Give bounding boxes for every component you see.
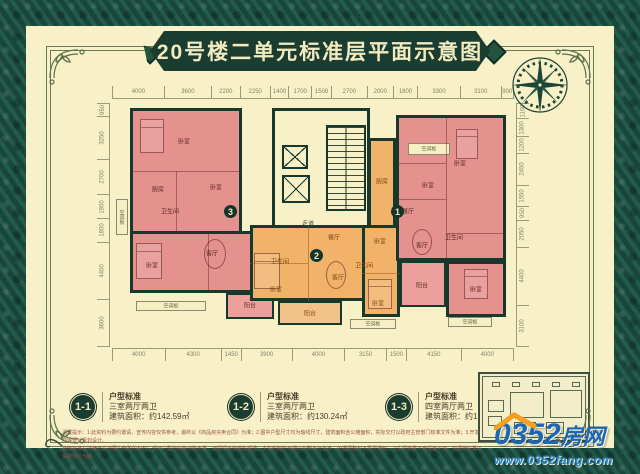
dimension-value: 2700: [331, 86, 366, 98]
dimension-value: 4000: [112, 349, 165, 361]
dimension-value: 950: [517, 206, 529, 219]
dimension-value: 4000: [292, 349, 345, 361]
legend-item-1-2: 1-2 户型标准 三室两厅两卫 建筑面积：约130.24㎡: [228, 388, 374, 426]
partition-wall: [308, 225, 309, 301]
dimension-value: 1700: [288, 86, 311, 98]
room-label: 卧室: [374, 237, 386, 246]
room-label: 空调板: [163, 303, 178, 310]
dimension-value: 4400: [517, 247, 529, 305]
unit-number-badge: 2: [310, 249, 323, 262]
disclaimer-line-1: 温馨提示：1.此资料为要约邀请，宣传内容仅供参考，最终以《商品房买卖合同》为准；…: [62, 429, 482, 445]
room-label: 阳台: [416, 281, 428, 290]
dimension-value: 2450: [517, 153, 529, 186]
legend-layout: 三室两厅两卫: [267, 402, 347, 412]
dimension-value: 3900: [241, 349, 292, 361]
dimension-value: 1200: [517, 136, 529, 153]
partition-wall: [396, 163, 446, 164]
dimension-strip-top: 4000360022002250140017001500270020001800…: [112, 86, 514, 99]
room-label: 客厅: [206, 249, 218, 258]
room-label: 空调板: [119, 210, 126, 225]
dimension-value: 3600: [164, 86, 211, 98]
dimension-value: 1400: [270, 86, 289, 98]
dimension-value: 2000: [367, 86, 393, 98]
legend-badge: 1-2: [228, 394, 254, 420]
room-label: 卧室: [372, 299, 384, 308]
dimension-value: 1800: [97, 218, 109, 242]
dimension-value: 3600: [97, 299, 109, 346]
dimension-value: 1500: [311, 86, 331, 98]
room-label: 阳台: [304, 309, 316, 318]
dimension-strip-bottom: 400043001450390040003150150041504000: [112, 348, 514, 361]
room-label: 客厅: [332, 273, 344, 282]
room-label: 阳台: [244, 301, 256, 310]
room-label: 卫生间: [355, 261, 373, 270]
dimension-value: 3300: [417, 86, 460, 98]
unit-number-badge: 3: [224, 205, 237, 218]
dimension-value: 2050: [517, 220, 529, 248]
room-label: 餐厅: [328, 233, 340, 242]
dimension-value: 2250: [240, 86, 270, 98]
room-label: 空调板: [421, 146, 436, 153]
dimension-value: 4000: [461, 349, 514, 361]
dimension-value: 4400: [97, 242, 109, 299]
stairs: [326, 125, 366, 211]
room-label: 卧室: [422, 181, 434, 190]
bed-symbol: [456, 129, 478, 159]
dimension-value: 4300: [165, 349, 221, 361]
dimension-value: 2700: [97, 159, 109, 194]
partition-wall: [130, 171, 242, 172]
dimension-value: 3100: [460, 86, 501, 98]
dimension-value: 4150: [406, 349, 460, 361]
brand-cn: 房网: [561, 424, 605, 449]
unit-legend: 1-1 户型标准 三室两厅两卫 建筑面积：约142.59㎡ 1-2 户型标准 三…: [70, 388, 540, 426]
disclaimer-text: 温馨提示：1.此资料为要约邀请，宣传内容仅供参考，最终以《商品房买卖合同》为准；…: [62, 429, 482, 461]
room-label: 卧室: [270, 285, 282, 294]
room-label: 卫生间: [271, 257, 289, 266]
legend-type: 户型标准: [267, 392, 347, 402]
legend-item-1-1: 1-1 户型标准 三室两厅两卫 建筑面积：约142.59㎡: [70, 388, 216, 426]
dimension-value: 1550: [517, 185, 529, 206]
bed-symbol: [140, 119, 164, 153]
disclaimer-line-2: 装修标准在法律允许范围内修改的权利；部分户型为镜像对称布置，详情请咨询销售现场；…: [62, 445, 482, 461]
legend-area: 建筑面积：约142.59㎡: [109, 412, 189, 422]
dimension-value: 4000: [112, 86, 164, 98]
dimension-strip-left: 950325027001800180044003600: [97, 103, 110, 347]
legend-layout: 三室两厅两卫: [109, 402, 189, 412]
legend-area: 建筑面积：约130.24㎡: [267, 412, 347, 422]
title-banner: 20号楼二单元标准层平面示意图: [150, 31, 490, 71]
room-label: 卧室: [210, 183, 222, 192]
partition-wall: [176, 171, 177, 231]
room-label: 空调板: [462, 319, 477, 326]
dimension-value: 1800: [97, 194, 109, 218]
page-title: 20号楼二单元标准层平面示意图: [157, 36, 483, 66]
floor-plan-poster: 20号楼二单元标准层平面示意图 400036002200225014001700…: [0, 0, 640, 474]
room-label: 卧室: [454, 159, 466, 168]
watermark-logo: 0352房网 www.0352fang.com: [494, 420, 636, 467]
room-label: 卫生间: [445, 233, 463, 242]
room-label: 卧室: [178, 137, 190, 146]
corner-flourish-icon: [48, 48, 88, 88]
dimension-strip-right: 11001300120024501550950205044003100: [516, 103, 529, 347]
room-label: 厨房: [376, 177, 388, 186]
room-label: 空调板: [365, 321, 380, 328]
dimension-value: 3250: [97, 116, 109, 158]
dimension-value: 1450: [221, 349, 241, 361]
dimension-value: 3100: [517, 305, 529, 346]
corner-flourish-icon: [552, 48, 592, 88]
website-url[interactable]: www.0352fang.com: [494, 453, 636, 467]
dimension-value: 950: [97, 103, 109, 116]
unit-number-badge: 1: [391, 205, 404, 218]
floor-plan: 卧室卧室厨房卫生间客厅卧室阳台空调板空调板走道厨房餐厅卧室卫生间卫生间客厅卧室卧…: [112, 103, 513, 346]
dimension-value: 2200: [211, 86, 240, 98]
room-label: 走道: [302, 219, 314, 228]
room-label: 厨房: [152, 185, 164, 194]
partition-wall: [396, 199, 446, 200]
room-label: 卧室: [146, 261, 158, 270]
dimension-value: 3150: [344, 349, 386, 361]
room-label: 卧室: [470, 285, 482, 294]
elevator: [282, 175, 310, 203]
corner-flourish-icon: [48, 405, 88, 445]
room-label: 卫生间: [161, 207, 179, 216]
dimension-value: 1300: [517, 118, 529, 136]
elevator: [282, 145, 308, 169]
dimension-value: 1800: [393, 86, 417, 98]
room-label: 客厅: [416, 241, 428, 250]
dimension-value: 1500: [386, 349, 406, 361]
roof-icon: [494, 412, 538, 430]
partition-wall: [362, 273, 400, 274]
legend-type: 户型标准: [109, 392, 189, 402]
legend-badge: 1-3: [386, 394, 412, 420]
